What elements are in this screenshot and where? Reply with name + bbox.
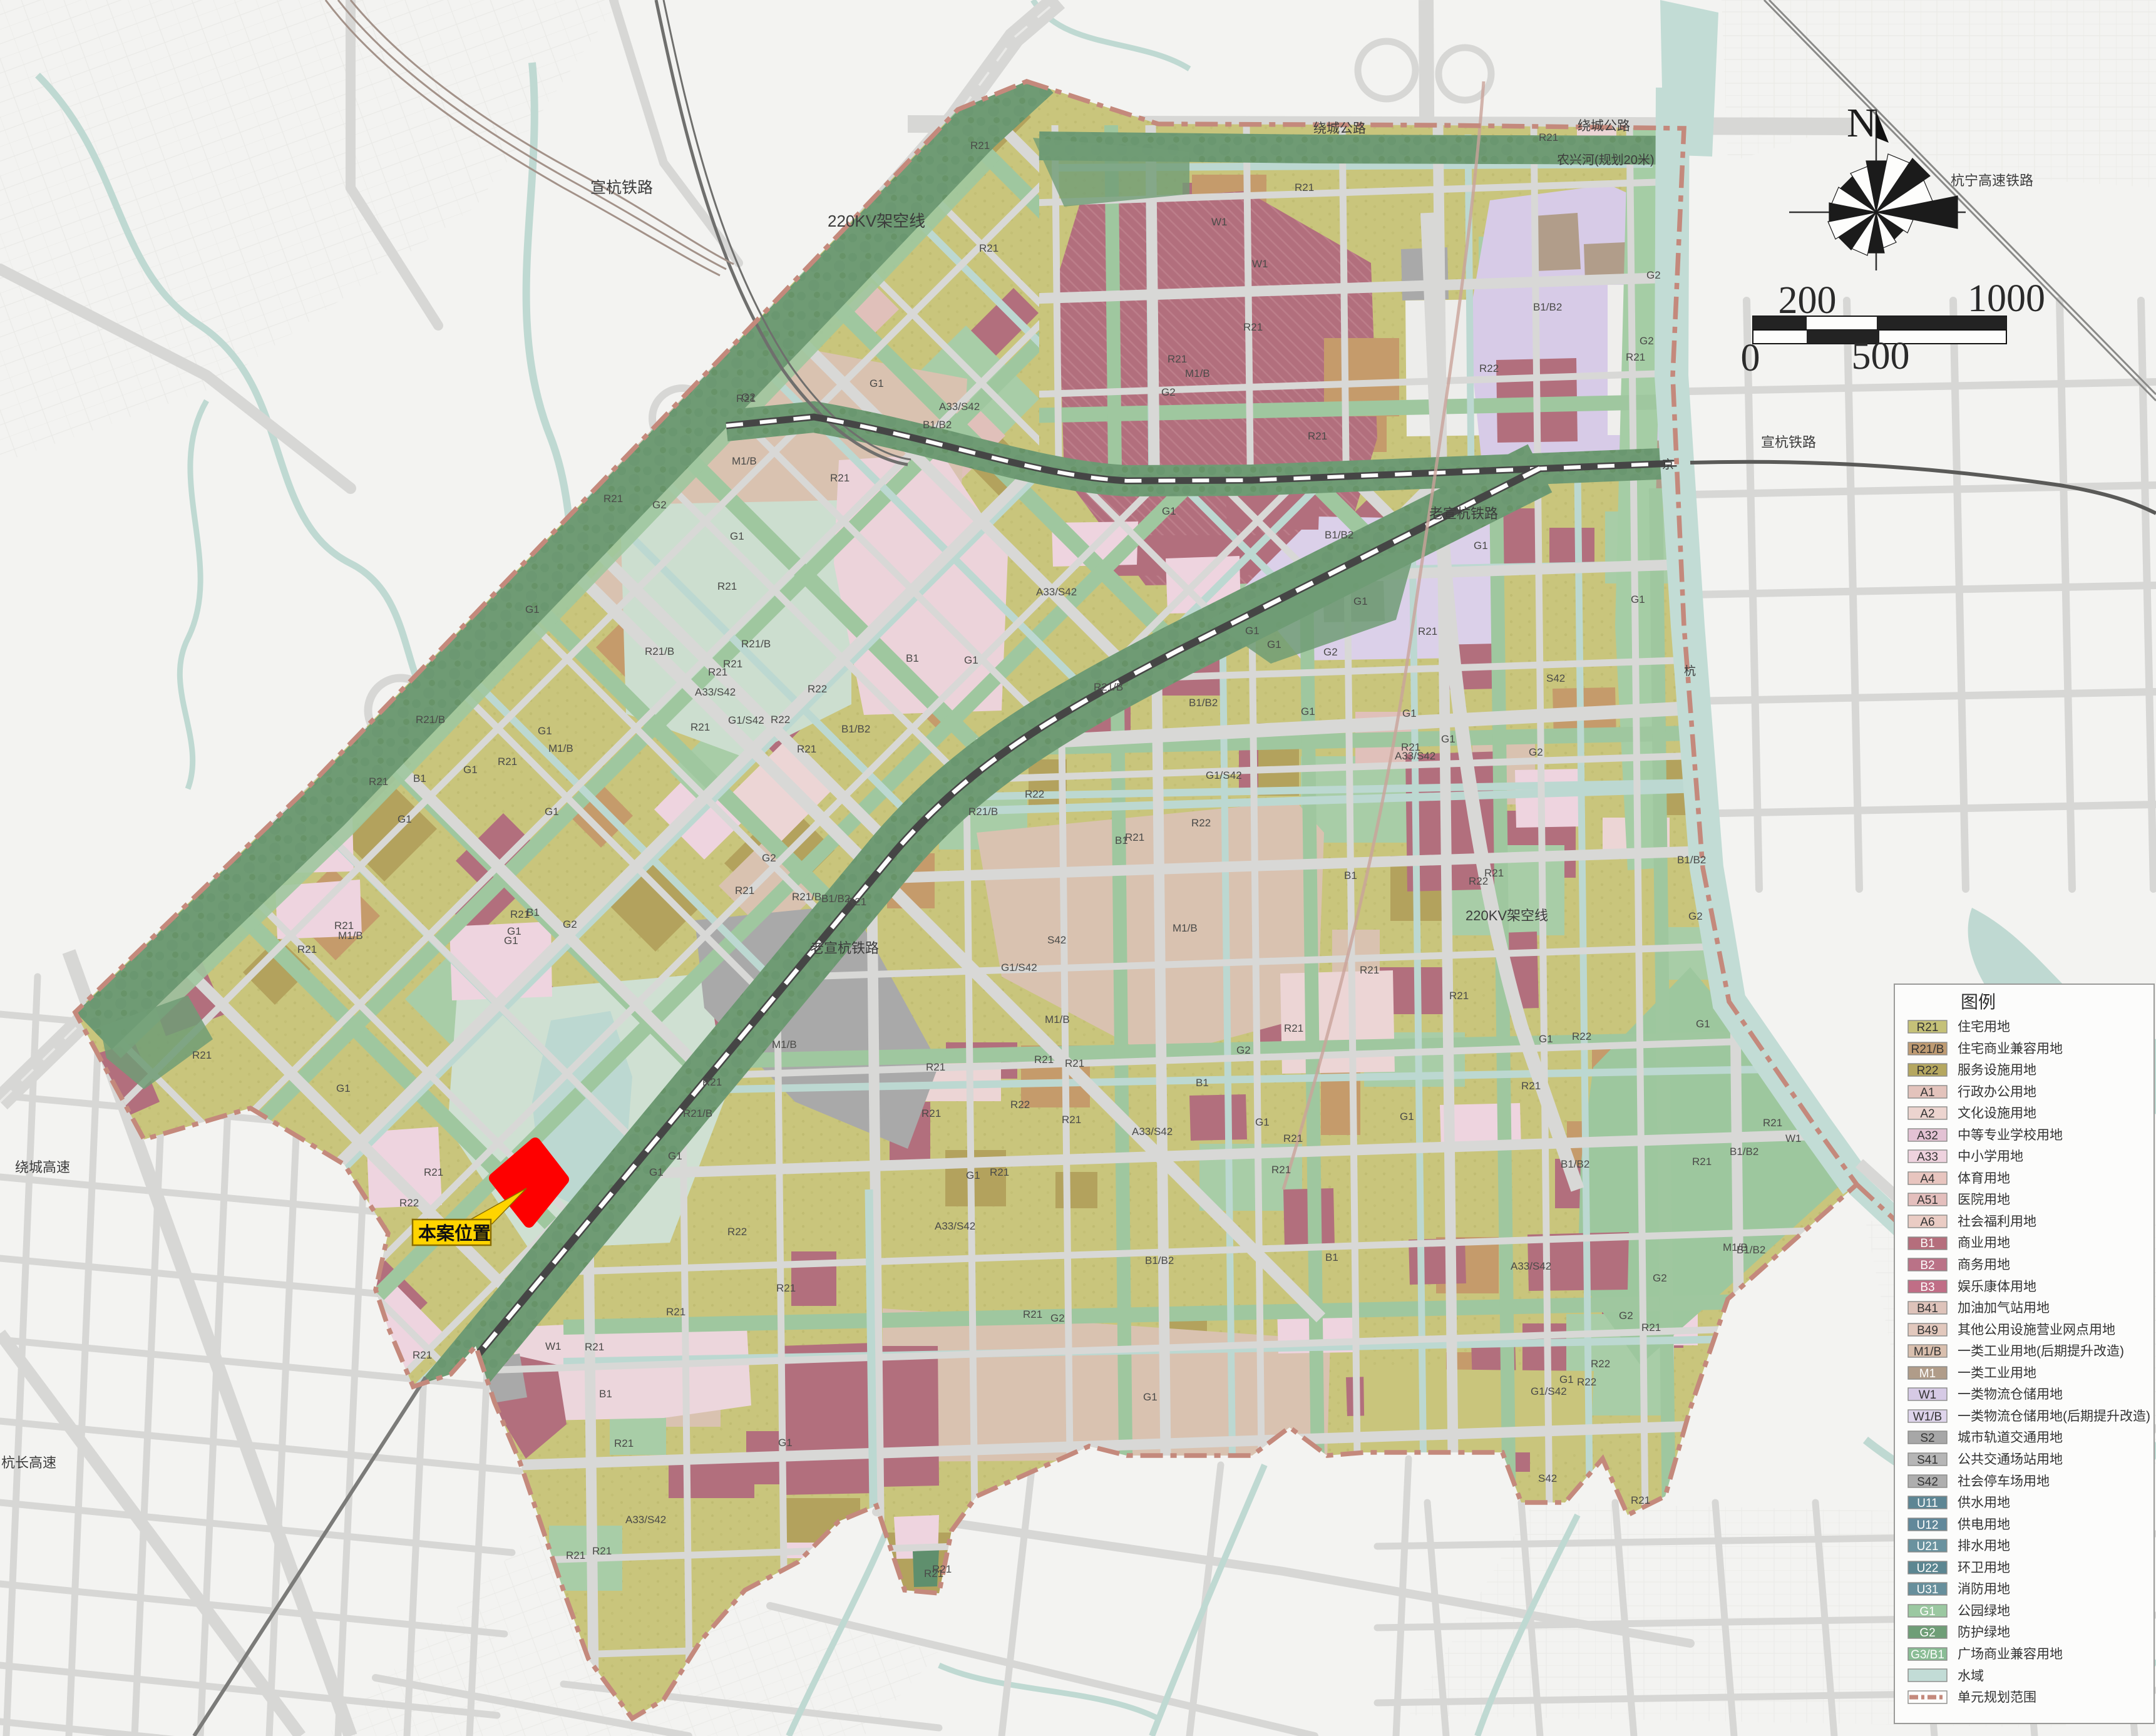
svg-text:R21: R21 <box>666 1306 685 1318</box>
svg-text:B1/B2: B1/B2 <box>1561 1158 1589 1170</box>
svg-text:G1: G1 <box>1267 639 1281 650</box>
svg-text:本案位置: 本案位置 <box>418 1223 491 1244</box>
svg-text:M1/B: M1/B <box>548 742 573 754</box>
svg-text:R21: R21 <box>413 1349 432 1361</box>
svg-text:G1: G1 <box>1696 1018 1710 1030</box>
svg-text:500: 500 <box>1852 335 1910 378</box>
svg-text:G1: G1 <box>525 603 540 615</box>
svg-text:R21: R21 <box>1023 1308 1042 1320</box>
svg-text:城市轨道交通用地: 城市轨道交通用地 <box>1958 1430 2063 1445</box>
svg-text:G1: G1 <box>504 935 518 947</box>
svg-text:G1: G1 <box>1255 1116 1270 1128</box>
svg-text:环卫用地: 环卫用地 <box>1958 1561 2010 1575</box>
svg-text:R21: R21 <box>1449 990 1469 1002</box>
svg-text:R21: R21 <box>921 1107 941 1119</box>
svg-text:200: 200 <box>1779 279 1837 322</box>
svg-text:G2: G2 <box>1653 1272 1667 1284</box>
svg-text:R21: R21 <box>1295 182 1314 193</box>
svg-text:B1: B1 <box>526 907 540 918</box>
svg-text:公园绿地: 公园绿地 <box>1958 1604 2010 1618</box>
svg-text:W1/B: W1/B <box>1913 1410 1942 1424</box>
svg-text:B1/B2: B1/B2 <box>821 893 850 905</box>
svg-text:B1/B2: B1/B2 <box>841 723 870 735</box>
svg-text:G2: G2 <box>762 852 776 864</box>
svg-text:N: N <box>1847 100 1877 146</box>
svg-text:R21: R21 <box>1917 1021 1939 1034</box>
svg-text:R21: R21 <box>498 756 517 768</box>
svg-text:B1: B1 <box>1325 1251 1338 1263</box>
svg-text:U31: U31 <box>1917 1583 1939 1596</box>
svg-text:行政办公用地: 行政办公用地 <box>1958 1085 2036 1099</box>
svg-text:G2: G2 <box>1646 269 1661 281</box>
svg-text:R21: R21 <box>192 1049 212 1061</box>
svg-text:R21: R21 <box>690 721 710 733</box>
svg-text:一类物流仓储用地: 一类物流仓储用地 <box>1958 1387 2063 1402</box>
svg-text:加油加气站用地: 加油加气站用地 <box>1958 1301 2050 1315</box>
svg-text:G1/S42: G1/S42 <box>728 714 764 726</box>
svg-text:R21: R21 <box>1168 353 1187 365</box>
svg-text:G2: G2 <box>1919 1626 1935 1640</box>
svg-text:R21: R21 <box>1283 1133 1303 1144</box>
svg-text:排水用地: 排水用地 <box>1958 1539 2010 1553</box>
svg-text:中小学用地: 中小学用地 <box>1958 1149 2023 1164</box>
svg-text:S41: S41 <box>1917 1454 1938 1467</box>
svg-text:B1: B1 <box>599 1388 612 1400</box>
svg-text:B2: B2 <box>1920 1259 1934 1272</box>
svg-text:M1: M1 <box>1919 1367 1936 1380</box>
svg-text:R22: R22 <box>399 1197 419 1209</box>
svg-text:住宅用地: 住宅用地 <box>1958 1020 2010 1034</box>
svg-text:G1: G1 <box>545 806 559 818</box>
svg-text:G1: G1 <box>1474 540 1488 552</box>
svg-text:R22: R22 <box>1025 788 1044 800</box>
svg-text:B1/B2: B1/B2 <box>923 419 952 431</box>
svg-text:绕城公路: 绕城公路 <box>1313 121 1366 136</box>
svg-text:单元规划范围: 单元规划范围 <box>1958 1690 2036 1705</box>
svg-text:G1: G1 <box>778 1437 793 1449</box>
svg-text:R21/B: R21/B <box>1911 1043 1944 1056</box>
svg-text:商业用地: 商业用地 <box>1958 1236 2010 1250</box>
svg-text:B1/B2: B1/B2 <box>1533 301 1562 313</box>
svg-text:住宅商业兼容用地: 住宅商业兼容用地 <box>1958 1042 2063 1056</box>
svg-text:B1/B2: B1/B2 <box>1730 1146 1758 1158</box>
svg-text:U11: U11 <box>1917 1497 1938 1510</box>
svg-text:M1/B: M1/B <box>1914 1345 1941 1358</box>
svg-text:R22: R22 <box>771 714 790 726</box>
svg-text:G1: G1 <box>668 1150 682 1162</box>
svg-text:W1: W1 <box>1785 1133 1802 1144</box>
svg-text:G2: G2 <box>1529 746 1543 758</box>
svg-text:R22: R22 <box>1191 817 1211 829</box>
svg-text:A33: A33 <box>1917 1151 1938 1164</box>
svg-text:G1: G1 <box>1400 1111 1414 1122</box>
svg-text:G1: G1 <box>1631 593 1645 605</box>
svg-text:M1/B: M1/B <box>732 455 757 467</box>
svg-text:G2: G2 <box>1688 910 1703 922</box>
svg-text:G1: G1 <box>1162 505 1176 517</box>
svg-text:G3/B1: G3/B1 <box>1911 1648 1944 1662</box>
svg-text:防护绿地: 防护绿地 <box>1958 1625 2010 1640</box>
svg-text:G1: G1 <box>1559 1374 1574 1385</box>
svg-text:W1: W1 <box>1211 216 1228 228</box>
svg-text:R21: R21 <box>1418 625 1437 637</box>
svg-text:U21: U21 <box>1917 1540 1939 1553</box>
svg-text:220KV架空线: 220KV架空线 <box>1466 908 1548 923</box>
svg-text:G1/S42: G1/S42 <box>1001 962 1037 973</box>
svg-text:R21/B: R21/B <box>741 638 771 650</box>
svg-text:S42: S42 <box>1047 934 1066 946</box>
svg-text:京: 京 <box>1662 458 1674 471</box>
svg-text:R22: R22 <box>808 683 827 695</box>
svg-text:R21: R21 <box>702 1076 722 1088</box>
svg-text:1000: 1000 <box>1968 277 2045 320</box>
svg-text:R21: R21 <box>585 1341 604 1353</box>
svg-text:商务用地: 商务用地 <box>1958 1258 2010 1272</box>
svg-text:R21: R21 <box>1521 1080 1541 1092</box>
svg-text:B1/B2: B1/B2 <box>1145 1255 1174 1266</box>
svg-text:G1: G1 <box>730 530 744 542</box>
svg-text:G1: G1 <box>336 1082 351 1094</box>
svg-text:文化设施用地: 文化设施用地 <box>1958 1106 2036 1121</box>
svg-text:R21: R21 <box>603 493 623 505</box>
svg-text:一类工业用地: 一类工业用地 <box>1958 1366 2036 1380</box>
svg-text:G1: G1 <box>1245 625 1260 637</box>
svg-text:A33/S42: A33/S42 <box>625 1514 666 1526</box>
svg-text:A4: A4 <box>1920 1173 1935 1186</box>
svg-text:R21: R21 <box>735 885 754 896</box>
svg-text:宣杭铁路: 宣杭铁路 <box>590 179 653 197</box>
svg-text:社会福利用地: 社会福利用地 <box>1958 1215 2036 1229</box>
svg-text:A51: A51 <box>1917 1194 1938 1207</box>
svg-text:B1/B2: B1/B2 <box>1189 697 1218 709</box>
svg-text:B1: B1 <box>1344 870 1357 881</box>
svg-text:G2: G2 <box>1640 335 1654 347</box>
svg-text:R21: R21 <box>1641 1322 1661 1333</box>
svg-text:0: 0 <box>1741 337 1760 379</box>
svg-text:R21: R21 <box>1284 1022 1303 1034</box>
svg-text:R21/B: R21/B <box>792 891 821 903</box>
svg-text:B49: B49 <box>1917 1324 1938 1337</box>
svg-text:R21: R21 <box>708 666 727 678</box>
svg-text:绕城公路: 绕城公路 <box>1578 119 1630 133</box>
svg-text:R21: R21 <box>1631 1494 1650 1506</box>
svg-text:G2: G2 <box>1619 1310 1633 1322</box>
svg-text:R22: R22 <box>1469 875 1488 887</box>
svg-text:R21: R21 <box>1763 1117 1782 1129</box>
svg-text:S42: S42 <box>1917 1476 1938 1489</box>
svg-text:A33/S42: A33/S42 <box>695 686 736 698</box>
svg-text:社会停车场用地: 社会停车场用地 <box>1958 1474 2050 1489</box>
svg-text:R21: R21 <box>926 1061 945 1073</box>
svg-text:消防用地: 消防用地 <box>1958 1582 2010 1596</box>
svg-text:R21: R21 <box>1034 1054 1054 1066</box>
svg-text:U12: U12 <box>1917 1519 1939 1532</box>
svg-text:G2: G2 <box>1161 386 1176 398</box>
svg-text:R21/B: R21/B <box>1094 681 1123 693</box>
svg-text:R21/B: R21/B <box>645 645 674 657</box>
svg-text:B3: B3 <box>1920 1281 1934 1294</box>
svg-text:G1/S42: G1/S42 <box>1531 1385 1567 1397</box>
svg-text:R22: R22 <box>1591 1358 1610 1370</box>
svg-text:A6: A6 <box>1920 1216 1934 1229</box>
svg-text:M1/B: M1/B <box>338 930 363 942</box>
svg-text:220KV架空线: 220KV架空线 <box>828 212 925 230</box>
svg-text:G2: G2 <box>1323 646 1338 658</box>
svg-text:R21: R21 <box>369 776 388 788</box>
svg-text:广场商业兼容用地: 广场商业兼容用地 <box>1958 1647 2063 1662</box>
svg-text:B1/B2: B1/B2 <box>1677 854 1706 866</box>
svg-text:B1: B1 <box>1920 1237 1934 1250</box>
svg-text:G1: G1 <box>1353 595 1368 607</box>
svg-text:R21: R21 <box>1626 351 1645 363</box>
svg-text:B1: B1 <box>906 652 919 664</box>
svg-text:R21/B: R21/B <box>683 1107 712 1119</box>
svg-text:娱乐康体用地: 娱乐康体用地 <box>1958 1280 2036 1294</box>
svg-text:G1: G1 <box>1919 1605 1935 1618</box>
svg-text:供水用地: 供水用地 <box>1958 1496 2010 1510</box>
svg-text:R21: R21 <box>830 472 850 484</box>
svg-text:G1: G1 <box>398 813 412 825</box>
svg-text:宣杭铁路: 宣杭铁路 <box>1761 434 1816 450</box>
svg-text:G1: G1 <box>1402 707 1417 719</box>
svg-text:老宣杭铁路: 老宣杭铁路 <box>1429 506 1498 521</box>
svg-text:R21: R21 <box>1360 964 1379 976</box>
svg-text:M1/B: M1/B <box>1723 1241 1748 1253</box>
svg-text:A33/S42: A33/S42 <box>1511 1260 1551 1272</box>
svg-text:供电用地: 供电用地 <box>1958 1518 2010 1532</box>
svg-text:G1/S42: G1/S42 <box>1206 769 1242 781</box>
svg-text:R22: R22 <box>1572 1030 1591 1042</box>
svg-text:杭宁高速铁路: 杭宁高速铁路 <box>1951 173 2033 188</box>
svg-text:R22: R22 <box>1010 1099 1030 1111</box>
svg-text:A33/S42: A33/S42 <box>939 401 980 413</box>
svg-text:R21: R21 <box>717 580 737 592</box>
svg-text:G2: G2 <box>1236 1044 1251 1056</box>
svg-text:杭长高速: 杭长高速 <box>1 1455 56 1471</box>
svg-text:A1: A1 <box>1920 1086 1934 1099</box>
svg-text:G1: G1 <box>1301 706 1315 717</box>
svg-text:R21: R21 <box>1271 1164 1291 1176</box>
svg-text:W1: W1 <box>1919 1389 1937 1402</box>
svg-text:R22: R22 <box>1917 1064 1939 1077</box>
svg-text:R21: R21 <box>424 1166 443 1178</box>
svg-text:绕城高速: 绕城高速 <box>15 1159 70 1175</box>
svg-text:服务设施用地: 服务设施用地 <box>1958 1063 2036 1077</box>
svg-text:一类物流仓储用地(后期提升改造): 一类物流仓储用地(后期提升改造) <box>1958 1409 2150 1424</box>
svg-text:水域: 水域 <box>1958 1669 1984 1683</box>
svg-text:R22: R22 <box>1577 1376 1596 1388</box>
svg-text:R21: R21 <box>797 743 816 755</box>
svg-text:G2: G2 <box>1050 1312 1065 1324</box>
svg-text:S42: S42 <box>1546 672 1565 684</box>
svg-text:R21: R21 <box>1065 1057 1084 1069</box>
svg-text:R21: R21 <box>1692 1156 1712 1168</box>
svg-text:R21: R21 <box>614 1437 634 1449</box>
svg-text:中等专业学校用地: 中等专业学校用地 <box>1958 1128 2063 1143</box>
svg-text:G1: G1 <box>870 378 884 389</box>
svg-text:M1/B: M1/B <box>772 1039 797 1050</box>
svg-text:R21: R21 <box>970 140 990 152</box>
svg-text:S2: S2 <box>1920 1432 1934 1445</box>
svg-text:G1: G1 <box>1539 1033 1553 1045</box>
svg-text:G1: G1 <box>1441 733 1455 745</box>
svg-text:R22: R22 <box>1479 362 1499 374</box>
svg-text:G1: G1 <box>1143 1391 1158 1403</box>
svg-text:R21: R21 <box>297 943 317 955</box>
svg-text:G1: G1 <box>964 654 978 666</box>
svg-text:公共交通场站用地: 公共交通场站用地 <box>1958 1452 2063 1467</box>
svg-text:其他公用设施营业网点用地: 其他公用设施营业网点用地 <box>1958 1323 2115 1337</box>
svg-text:M1/B: M1/B <box>1185 367 1210 379</box>
svg-text:R21: R21 <box>592 1545 612 1557</box>
svg-text:A2: A2 <box>1920 1107 1934 1121</box>
svg-text:一类工业用地(后期提升改造): 一类工业用地(后期提升改造) <box>1958 1344 2124 1358</box>
svg-text:R21/B: R21/B <box>968 806 998 818</box>
svg-text:G2: G2 <box>563 918 577 930</box>
svg-text:G2: G2 <box>652 499 667 511</box>
svg-text:U22: U22 <box>1917 1562 1939 1575</box>
svg-text:R21: R21 <box>979 242 998 254</box>
svg-text:老宣杭铁路: 老宣杭铁路 <box>810 940 879 956</box>
svg-text:B1: B1 <box>413 773 426 784</box>
svg-text:W1: W1 <box>545 1340 562 1352</box>
svg-text:A33/S42: A33/S42 <box>1036 586 1077 598</box>
svg-text:A33/S42: A33/S42 <box>1395 750 1435 762</box>
svg-text:R21: R21 <box>1539 131 1558 143</box>
svg-text:图例: 图例 <box>1961 992 1996 1012</box>
svg-text:R21: R21 <box>1308 430 1327 442</box>
svg-text:G1: G1 <box>649 1166 664 1178</box>
svg-text:农兴河(规划20米): 农兴河(规划20米) <box>1557 153 1655 167</box>
svg-text:W1: W1 <box>1252 258 1268 270</box>
svg-text:B1: B1 <box>1196 1077 1209 1089</box>
svg-text:R21: R21 <box>1062 1114 1081 1126</box>
svg-text:G1: G1 <box>966 1169 980 1181</box>
svg-text:G1: G1 <box>538 725 552 737</box>
svg-text:G2: G2 <box>741 391 756 403</box>
svg-text:A32: A32 <box>1917 1129 1938 1143</box>
svg-text:R21: R21 <box>776 1282 796 1294</box>
svg-text:体育用地: 体育用地 <box>1958 1171 2010 1186</box>
svg-text:R21: R21 <box>566 1549 585 1561</box>
svg-text:B1/B2: B1/B2 <box>1325 529 1353 541</box>
svg-text:M1/B: M1/B <box>1045 1014 1070 1025</box>
svg-text:R21: R21 <box>932 1563 952 1575</box>
svg-text:杭: 杭 <box>1684 664 1696 678</box>
svg-text:A33/S42: A33/S42 <box>1132 1126 1173 1138</box>
svg-text:医院用地: 医院用地 <box>1958 1193 2010 1207</box>
svg-text:B41: B41 <box>1917 1302 1938 1315</box>
svg-text:M1/B: M1/B <box>1173 922 1198 934</box>
svg-text:R21/B: R21/B <box>416 714 445 726</box>
svg-text:R21: R21 <box>1243 321 1263 333</box>
svg-text:B1: B1 <box>1115 835 1128 846</box>
svg-text:S42: S42 <box>1538 1472 1557 1484</box>
svg-text:R22: R22 <box>727 1226 747 1238</box>
svg-text:R21: R21 <box>990 1166 1009 1178</box>
svg-text:A33/S42: A33/S42 <box>935 1220 975 1232</box>
svg-text:G1: G1 <box>463 764 478 776</box>
